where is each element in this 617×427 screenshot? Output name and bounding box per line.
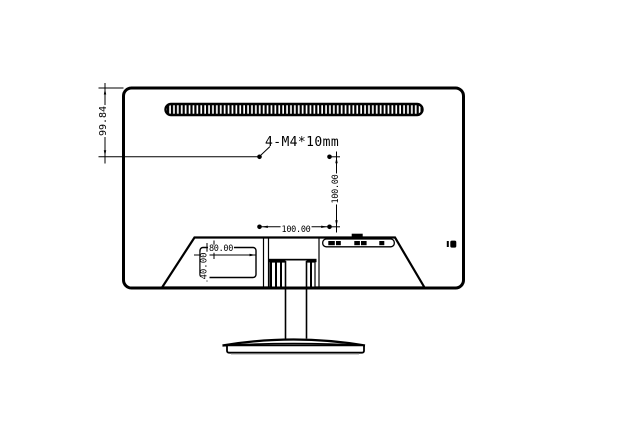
technical-drawing-canvas: 99.84 4-M4*10mm 100.00 100.00 80.00 40.0… [0,0,617,427]
drawing-linework [0,0,617,427]
vesa-hole-top-right [327,155,332,160]
dim-text-vesa-vertical: 100.00 [332,174,341,205]
dim-text-top-to-vesa: 99.84 [99,105,109,137]
port-top-block [352,234,363,238]
dim-text-vesa-horizontal: 100.00 [281,225,312,234]
dim-text-label-height: 40.00 [201,251,210,280]
dim-text-label-width: 80.00 [208,244,234,253]
vesa-hole-bottom-left [257,225,262,230]
stand-column [286,261,307,339]
vesa-hole-bottom-right [327,225,332,230]
screw-spec-text: 4-M4*10mm [265,136,339,149]
stand-base [223,340,366,355]
brand-mark [447,241,457,248]
vent-grille [166,104,423,115]
